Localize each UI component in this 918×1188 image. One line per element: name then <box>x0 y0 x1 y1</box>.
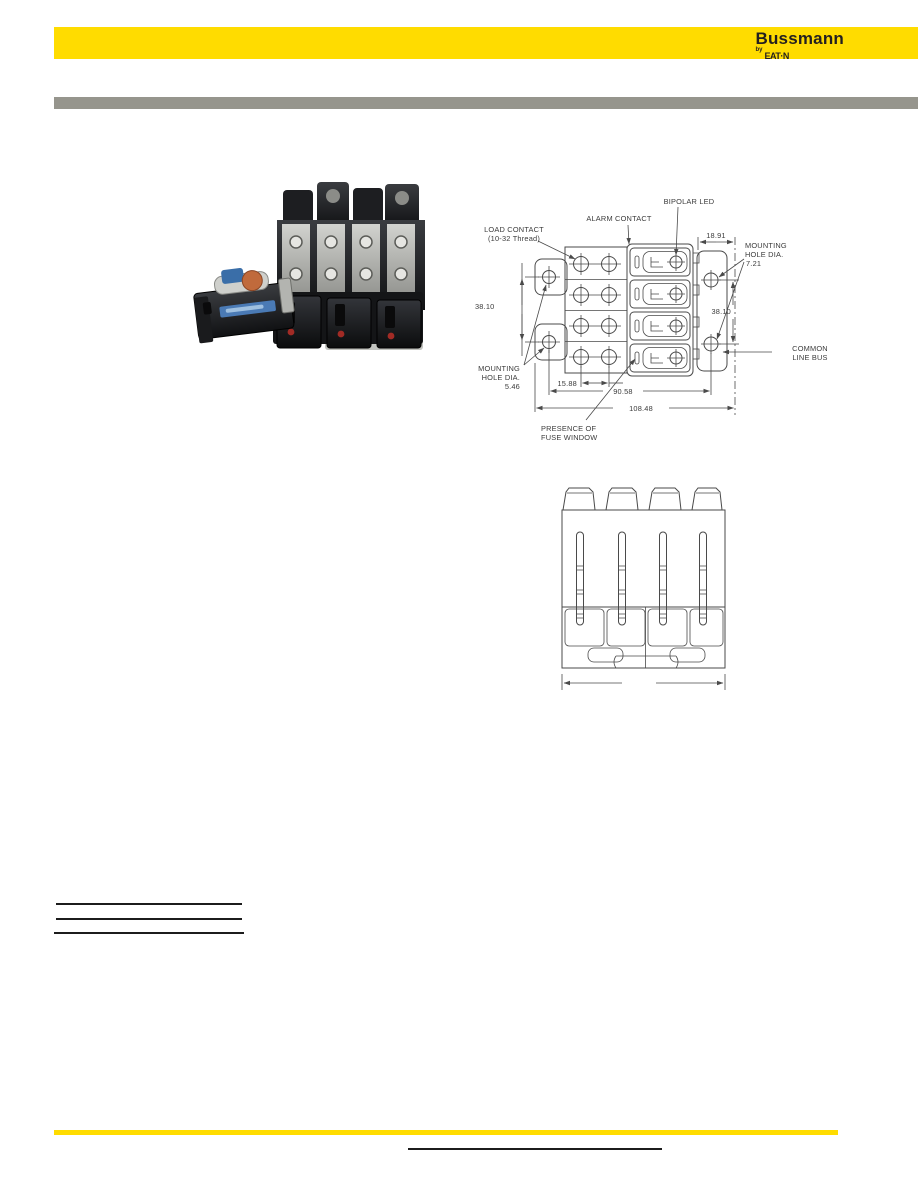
table-rule-top <box>56 903 242 905</box>
label-mounting-right-1: MOUNTING <box>745 241 787 250</box>
table-rule-middle <box>56 918 242 920</box>
product-photo <box>185 176 431 358</box>
dim-left-vertical: 38.10 <box>475 302 495 311</box>
dim-right-vertical: 38.10 <box>712 307 732 316</box>
eaton-logo: EAT·N <box>765 51 789 61</box>
label-common-bus-2: LINE BUS <box>792 353 827 362</box>
header-yellow-bar: Bussmann byEAT·N <box>54 27 918 59</box>
value-mounting-right: 7.21 <box>746 259 761 268</box>
label-mounting-left-2: HOLE DIA. <box>482 373 520 382</box>
label-bipolar-led: BIPOLAR LED <box>664 197 715 206</box>
label-load-contact-2: (10-32 Thread) <box>488 234 540 243</box>
brand-logo: Bussmann byEAT·N <box>755 30 844 63</box>
section-gray-bar <box>54 97 918 109</box>
dim-hole-span: 90.58 <box>613 387 633 396</box>
fuse-carriers <box>273 292 423 348</box>
value-mounting-left: 5.46 <box>505 382 520 391</box>
table-rule-bottom <box>54 932 244 934</box>
side-view-outline <box>562 488 725 668</box>
label-load-contact-1: LOAD CONTACT <box>484 225 544 234</box>
dim-overall-width: 108.48 <box>629 404 653 413</box>
brand-name: Bussmann <box>755 30 844 47</box>
front-view-drawing: BIPOLAR LED ALARM CONTACT LOAD CONTACT (… <box>465 193 918 453</box>
label-mounting-left-1: MOUNTING <box>478 364 520 373</box>
dimension-drawing-front-view: BIPOLAR LED ALARM CONTACT LOAD CONTACT (… <box>465 193 918 453</box>
dimension-drawing-side-view <box>552 478 752 696</box>
fuse-block-photo-illustration <box>185 176 431 358</box>
dim-contact-spacing: 15.88 <box>558 379 578 388</box>
block-outline <box>535 244 727 376</box>
label-alarm-contact: ALARM CONTACT <box>586 214 652 223</box>
datasheet-page: Bussmann byEAT·N <box>0 0 918 1188</box>
side-view-drawing <box>552 478 752 696</box>
label-presence-2: FUSE WINDOW <box>541 433 597 442</box>
drawing-labels: BIPOLAR LED ALARM CONTACT LOAD CONTACT (… <box>475 197 828 442</box>
dimension-lines <box>522 207 772 420</box>
label-mounting-right-2: HOLE DIA. <box>745 250 783 259</box>
side-view-dimension <box>562 674 725 690</box>
label-common-bus-1: COMMON <box>792 344 828 353</box>
footer-black-rule <box>408 1148 662 1150</box>
label-presence-1: PRESENCE OF <box>541 424 596 433</box>
dim-top-right: 18.91 <box>706 231 726 240</box>
brand-byline-prefix: by <box>755 47 762 53</box>
footer-yellow-rule <box>54 1130 838 1135</box>
